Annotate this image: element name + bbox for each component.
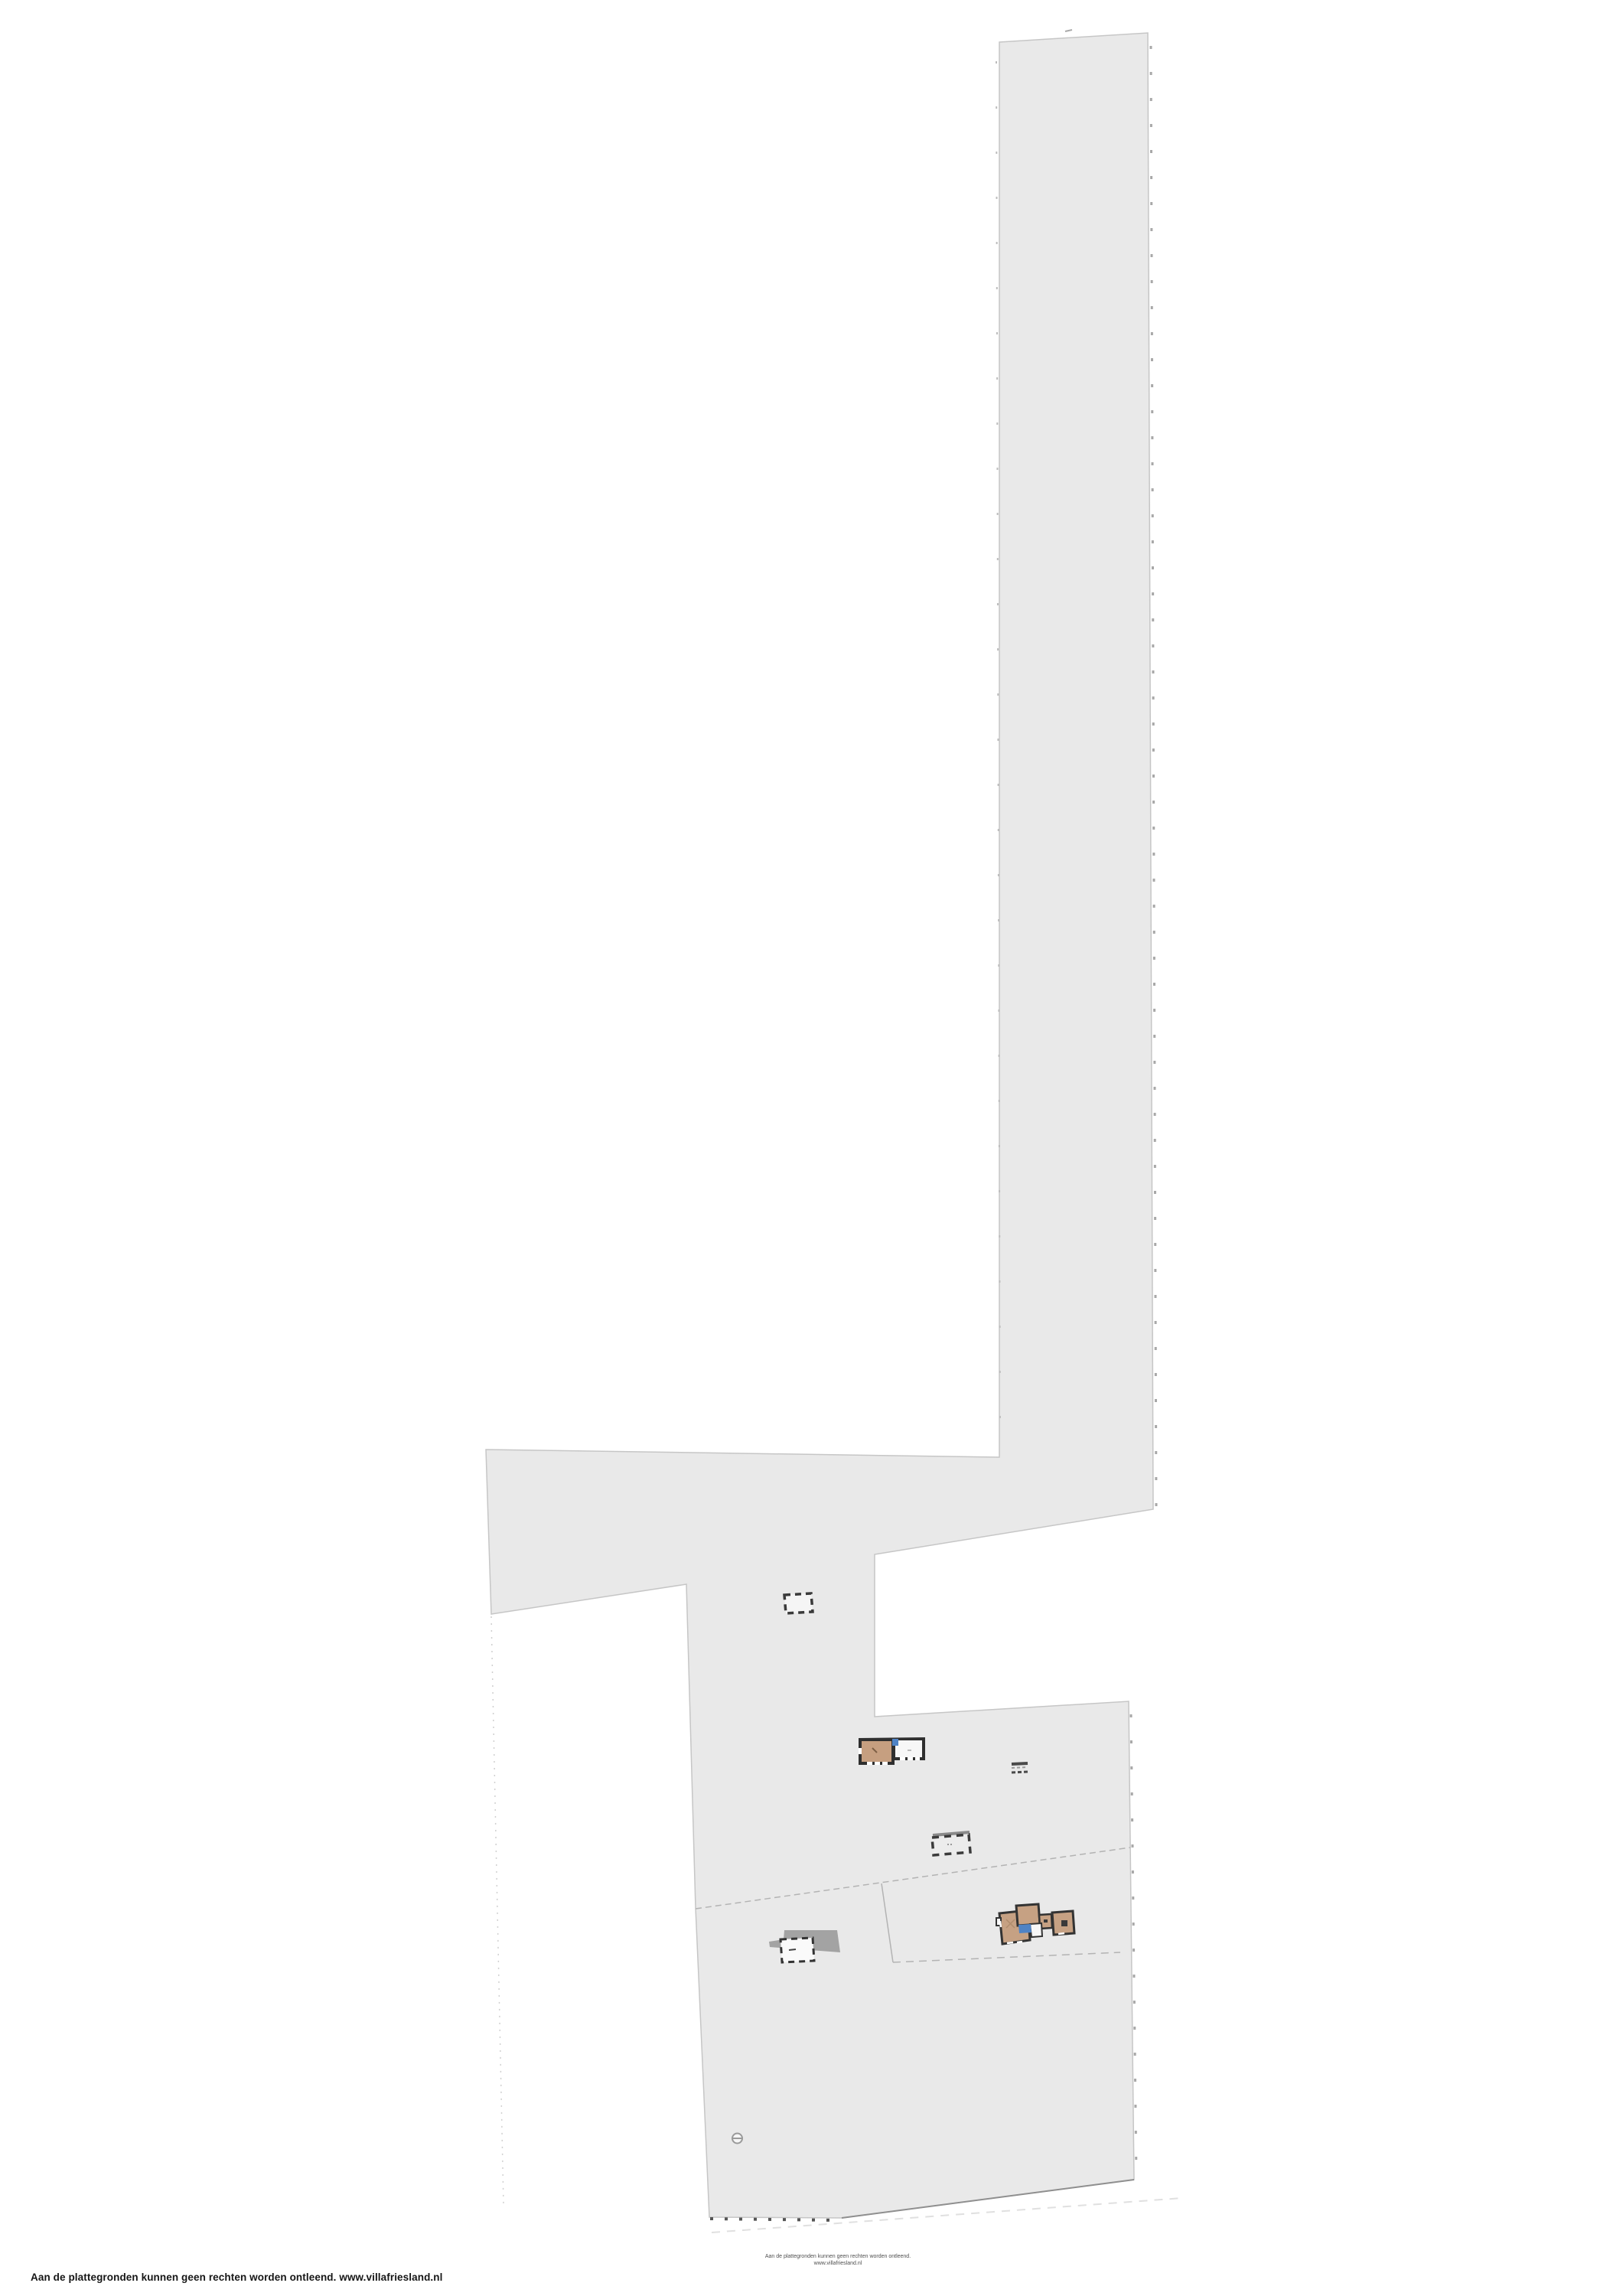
disclaimer-small-line1: Aan de plattegronden kunnen geen rechten… — [723, 2253, 953, 2260]
house-stove — [1061, 1920, 1067, 1926]
boundary-bottom-dots — [710, 2219, 838, 2220]
site-plan-drawing — [0, 0, 1623, 2296]
disclaimer-text-small: Aan de plattegronden kunnen geen rechten… — [723, 2253, 953, 2267]
garage-door-gap — [867, 1762, 872, 1765]
garage-door-gap — [875, 1762, 880, 1765]
bench-top-bar — [1012, 1763, 1028, 1764]
shed-c-outline — [781, 1938, 814, 1962]
bench-mid-bar — [1012, 1767, 1028, 1768]
house-blue-unit — [1018, 1924, 1031, 1933]
garage-floor-dot — [908, 1750, 911, 1751]
garage-door-gap — [882, 1762, 888, 1765]
site-plan-canvas: Aan de plattegronden kunnen geen rechten… — [0, 0, 1623, 2296]
disclaimer-text-bold: Aan de plattegronden kunnen geen rechten… — [31, 2272, 442, 2283]
survey-tick-top — [1065, 30, 1072, 31]
shed-c-mark — [789, 1949, 796, 1950]
boundary-west-dotted — [491, 1616, 504, 2204]
garage-room-right — [895, 1740, 922, 1757]
house-window-gap — [1000, 1921, 1001, 1927]
garage-window-gap-left — [859, 1748, 862, 1754]
house-room-northwest — [1016, 1904, 1040, 1926]
disclaimer-small-line2: www.villafriesland.nl — [723, 2260, 953, 2267]
house-mid-fixture — [1044, 1919, 1048, 1923]
parcel-outline — [486, 33, 1153, 2218]
house-window-gap — [1007, 1942, 1013, 1943]
house-window-gap — [1017, 1942, 1022, 1942]
garage-window-gap — [915, 1757, 920, 1760]
garage-window-gap — [908, 1757, 913, 1760]
garage-window-gap — [900, 1757, 905, 1760]
bench-bottom-bar — [1012, 1772, 1028, 1773]
garage-blue-unit — [892, 1739, 898, 1746]
shed-e-outline — [784, 1593, 813, 1613]
house-window-gap — [1058, 1933, 1064, 1934]
house-hall — [1030, 1923, 1042, 1937]
